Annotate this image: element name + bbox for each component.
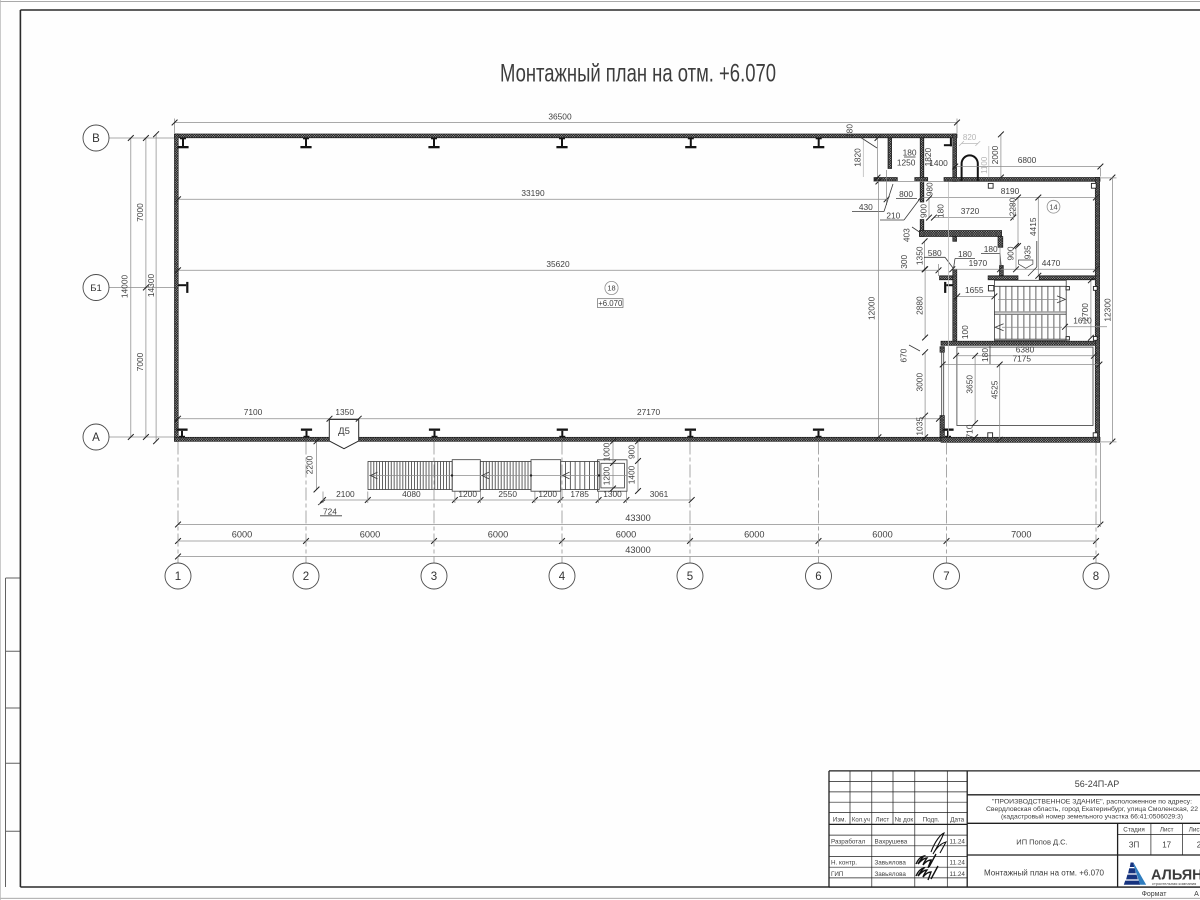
svg-text:180: 180: [903, 148, 917, 158]
svg-text:17: 17: [1162, 841, 1171, 850]
svg-text:7000: 7000: [1011, 530, 1031, 540]
svg-text:Стадия: Стадия: [1123, 827, 1144, 834]
svg-text:1610: 1610: [1073, 315, 1092, 325]
svg-text:Свердловская область, город Ек: Свердловская область, город Екатеринбург…: [986, 806, 1199, 813]
svg-text:1350: 1350: [335, 407, 354, 417]
svg-text:900: 900: [919, 204, 929, 218]
svg-text:Вахрушева: Вахрушева: [875, 839, 908, 846]
svg-text:2: 2: [303, 571, 309, 583]
svg-text:1200: 1200: [602, 466, 612, 485]
svg-text:724: 724: [323, 506, 337, 516]
svg-text:3650: 3650: [964, 375, 974, 394]
svg-text:7000: 7000: [135, 352, 145, 371]
svg-text:43000: 43000: [625, 545, 651, 555]
svg-text:35620: 35620: [546, 259, 570, 269]
svg-text:Листов: Листов: [1189, 827, 1200, 834]
svg-text:А: А: [1194, 891, 1199, 898]
svg-text:180: 180: [984, 244, 998, 254]
svg-text:1200: 1200: [538, 489, 557, 499]
svg-text:"ПРОИЗВОДСТВЕННОЕ ЗДАНИЕ", рас: "ПРОИЗВОДСТВЕННОЕ ЗДАНИЕ", расположенное…: [992, 798, 1192, 805]
svg-text:1400: 1400: [929, 158, 948, 168]
svg-text:7100: 7100: [244, 407, 263, 417]
svg-text:33190: 33190: [521, 188, 545, 198]
svg-text:210: 210: [886, 211, 900, 221]
svg-text:6000: 6000: [232, 530, 252, 540]
svg-text:670: 670: [899, 348, 909, 362]
svg-text:Б1: Б1: [90, 283, 102, 294]
svg-text:900: 900: [1006, 246, 1016, 260]
svg-text:Монтажный план на отм. +6.070: Монтажный план на отм. +6.070: [984, 868, 1105, 877]
svg-text:4080: 4080: [402, 489, 421, 499]
svg-text:4: 4: [559, 571, 566, 583]
svg-text:6000: 6000: [616, 530, 636, 540]
svg-text:2880: 2880: [915, 296, 925, 315]
svg-text:(кадастровый номер земельного: (кадастровый номер земельного участка 66…: [1001, 814, 1183, 821]
svg-text:6: 6: [815, 571, 821, 583]
svg-text:ГИП: ГИП: [831, 871, 844, 878]
svg-text:56-24П-АР: 56-24П-АР: [1075, 779, 1120, 789]
svg-text:Лист: Лист: [1160, 827, 1174, 834]
svg-text:6000: 6000: [488, 530, 508, 540]
svg-text:2280: 2280: [1007, 197, 1017, 216]
svg-text:Монтажный план на отм. +6.070: Монтажный план на отм. +6.070: [500, 60, 776, 88]
svg-text:180: 180: [845, 124, 855, 138]
svg-text:В: В: [92, 133, 100, 145]
svg-text:Разработал: Разработал: [831, 838, 866, 846]
svg-text:1200: 1200: [458, 489, 477, 499]
svg-text:36500: 36500: [548, 112, 572, 122]
svg-text:1350: 1350: [914, 246, 924, 265]
svg-text:Кол.уч: Кол.уч: [852, 818, 870, 824]
svg-text:8: 8: [1093, 571, 1099, 583]
svg-text:11.24: 11.24: [950, 871, 966, 878]
svg-text:300: 300: [899, 254, 909, 268]
svg-text:Подп.: Подп.: [923, 817, 940, 824]
svg-text:№ док: № док: [895, 817, 914, 824]
svg-text:7: 7: [943, 571, 949, 583]
svg-text:+6.070: +6.070: [598, 299, 623, 308]
svg-text:710: 710: [964, 424, 974, 438]
svg-text:403: 403: [902, 228, 912, 242]
svg-text:4470: 4470: [1042, 258, 1061, 268]
svg-text:180: 180: [980, 348, 990, 362]
svg-text:1000: 1000: [602, 442, 612, 461]
svg-text:8190: 8190: [1001, 186, 1020, 196]
svg-text:100: 100: [960, 325, 970, 339]
svg-text:Н. контр.: Н. контр.: [831, 860, 857, 867]
svg-text:Лист: Лист: [876, 817, 890, 824]
svg-text:7175: 7175: [1013, 353, 1032, 363]
svg-text:580: 580: [928, 248, 942, 258]
svg-text:6000: 6000: [872, 530, 892, 540]
svg-text:6000: 6000: [744, 530, 764, 540]
svg-text:1655: 1655: [965, 285, 984, 295]
svg-text:6800: 6800: [1018, 155, 1037, 165]
svg-text:7000: 7000: [135, 203, 145, 222]
svg-text:А: А: [92, 432, 100, 444]
svg-text:820: 820: [963, 133, 977, 142]
svg-text:980: 980: [924, 182, 934, 196]
svg-text:430: 430: [859, 202, 873, 212]
svg-text:1250: 1250: [897, 158, 916, 168]
svg-text:2550: 2550: [498, 489, 517, 499]
svg-text:2000: 2000: [990, 145, 1000, 164]
svg-text:11.24: 11.24: [950, 860, 966, 867]
svg-text:ЗП: ЗП: [1129, 841, 1140, 850]
svg-text:4525: 4525: [989, 380, 999, 399]
svg-text:43300: 43300: [625, 513, 651, 523]
svg-text:1400: 1400: [627, 465, 637, 484]
svg-text:3720: 3720: [961, 206, 980, 216]
svg-text:Д5: Д5: [338, 426, 350, 437]
svg-text:1970: 1970: [969, 258, 988, 268]
svg-text:27170: 27170: [637, 407, 661, 417]
svg-text:14000: 14000: [120, 275, 130, 299]
svg-text:3061: 3061: [650, 489, 669, 499]
svg-text:Дата: Дата: [950, 817, 964, 824]
svg-text:1035: 1035: [915, 417, 925, 436]
svg-text:1100: 1100: [980, 156, 989, 174]
svg-text:3000: 3000: [915, 373, 925, 392]
svg-text:Завьялова: Завьялова: [875, 860, 907, 867]
svg-text:строительная компания: строительная компания: [1152, 881, 1196, 886]
svg-text:18: 18: [607, 284, 615, 293]
svg-text:Изм.: Изм.: [833, 817, 847, 824]
svg-text:5: 5: [687, 571, 693, 583]
svg-text:1300: 1300: [603, 489, 622, 499]
svg-text:1785: 1785: [570, 489, 589, 499]
svg-text:3: 3: [431, 571, 437, 583]
svg-text:900: 900: [627, 445, 637, 459]
svg-text:Формат: Формат: [1142, 891, 1168, 898]
svg-text:12000: 12000: [867, 296, 877, 320]
svg-text:1: 1: [175, 571, 181, 583]
svg-text:14: 14: [1050, 202, 1058, 211]
svg-text:180: 180: [935, 204, 945, 218]
svg-text:12300: 12300: [1102, 298, 1112, 322]
svg-text:14300: 14300: [146, 274, 156, 298]
svg-text:2100: 2100: [336, 489, 355, 499]
svg-text:800: 800: [899, 189, 913, 199]
svg-text:6000: 6000: [360, 530, 380, 540]
svg-text:1820: 1820: [853, 148, 863, 167]
svg-text:ИП Попов Д.С.: ИП Попов Д.С.: [1016, 838, 1067, 847]
svg-text:11.24: 11.24: [950, 839, 966, 846]
svg-text:Завьялова: Завьялова: [875, 871, 907, 878]
svg-text:4415: 4415: [1028, 217, 1038, 236]
